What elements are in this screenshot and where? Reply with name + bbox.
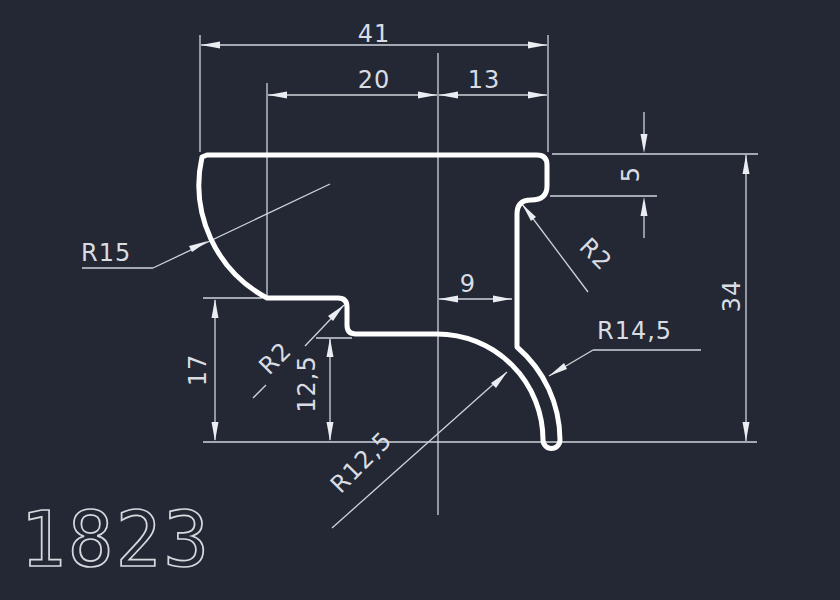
dim-12-5-label: 12,5 xyxy=(293,355,321,412)
dimension-wall-inset: 9 xyxy=(439,270,512,303)
arrowhead-icon xyxy=(549,363,567,376)
dimension-left-width: 20 xyxy=(267,53,438,515)
arrowhead-up-icon xyxy=(327,338,334,357)
arrowhead-left-icon xyxy=(439,296,458,303)
arrowhead-right-icon xyxy=(493,296,512,303)
dim-20-label: 20 xyxy=(358,66,391,94)
profile-outline xyxy=(199,155,560,449)
dimension-left-height: 17 xyxy=(184,298,262,441)
dimension-right-width: 13 xyxy=(439,66,547,99)
arrowhead-right-icon xyxy=(528,92,547,99)
dim-41-label: 41 xyxy=(358,20,391,48)
radius-r12-5: R12,5 xyxy=(325,372,507,528)
dim-13-label: 13 xyxy=(468,66,501,94)
r12-5-label: R12,5 xyxy=(325,426,398,499)
radius-r14-5: R14,5 xyxy=(549,317,701,376)
arrowhead-down-icon xyxy=(212,422,219,441)
arrowhead-left-icon xyxy=(439,92,458,99)
arrowhead-icon xyxy=(491,372,507,388)
dimension-total-height: 34 xyxy=(718,155,750,441)
dim-34-label: 34 xyxy=(718,280,746,313)
r15-label: R15 xyxy=(81,239,131,267)
dimension-lip-height: 5 xyxy=(550,112,758,238)
leader-line xyxy=(153,184,330,268)
leader-line xyxy=(253,385,266,398)
arrowhead-left-icon xyxy=(268,92,287,99)
dim-17-label: 17 xyxy=(184,354,212,387)
arrowhead-right-icon xyxy=(528,42,547,49)
arrowhead-icon xyxy=(522,204,536,221)
arrowhead-down-icon xyxy=(327,422,334,441)
r2-right-label: R2 xyxy=(574,232,618,276)
arrowhead-icon xyxy=(189,241,208,252)
dimension-inner-height: 12,5 xyxy=(293,338,352,441)
profile-path xyxy=(199,155,560,449)
arrowhead-down-icon xyxy=(641,134,648,153)
arrowhead-down-icon xyxy=(743,422,750,441)
dim-5-label: 5 xyxy=(617,166,645,182)
part-number: 1823 xyxy=(20,495,211,584)
r2-left-label: R2 xyxy=(253,336,297,380)
arrowhead-left-icon xyxy=(201,42,220,49)
arrowhead-up-icon xyxy=(212,299,219,318)
arrowhead-up-icon xyxy=(743,155,750,174)
radius-r2-right: R2 xyxy=(522,204,618,292)
cad-canvas: 41 20 13 5 34 9 xyxy=(0,0,840,600)
arrowhead-right-icon xyxy=(418,92,437,99)
dim-9-label: 9 xyxy=(460,270,476,298)
arrowhead-up-icon xyxy=(641,197,648,216)
r14-5-label: R14,5 xyxy=(597,317,672,345)
